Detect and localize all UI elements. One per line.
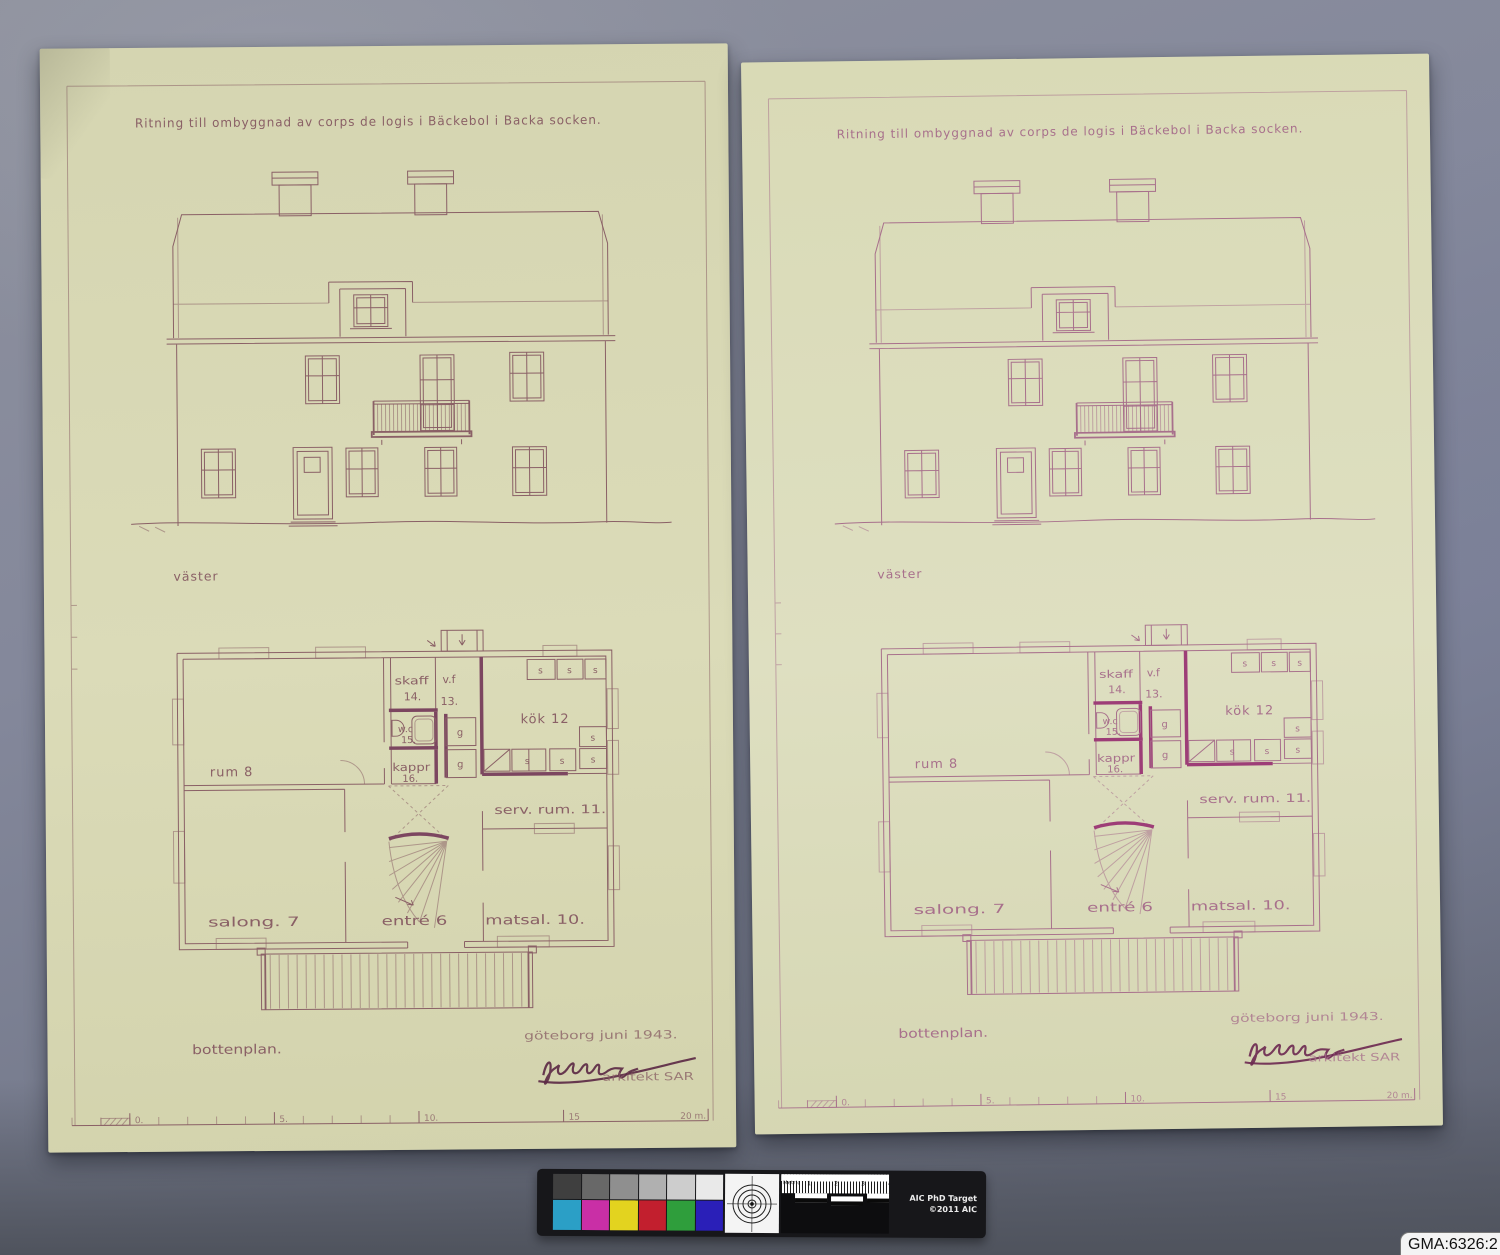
ruler-number: 2 bbox=[834, 1181, 838, 1187]
gray-patch bbox=[696, 1175, 724, 1200]
target-brand-line2: ©2011 AIC bbox=[889, 1205, 977, 1214]
drawing-sheet-original bbox=[40, 43, 737, 1152]
gray-patch bbox=[582, 1174, 610, 1199]
gray-patch bbox=[553, 1174, 581, 1199]
checker-block bbox=[795, 1193, 827, 1202]
color-patch bbox=[610, 1200, 638, 1230]
checker-block bbox=[831, 1196, 863, 1205]
gray-patch bbox=[639, 1174, 667, 1199]
color-patch bbox=[695, 1201, 723, 1231]
photo-backdrop: Metric 1 2 3 4 5 AIC PhD Target ©2011 AI… bbox=[0, 0, 1500, 1255]
target-brand: AIC PhD Target ©2011 AIC bbox=[889, 1175, 980, 1234]
checker-block bbox=[867, 1194, 889, 1203]
target-brand-line1: AIC PhD Target bbox=[889, 1194, 977, 1203]
metric-ruler-strip: Metric 1 2 3 4 5 bbox=[781, 1174, 889, 1194]
drawing-left bbox=[40, 43, 737, 1152]
ruler-number: 3 bbox=[861, 1182, 865, 1188]
color-calibration-target: Metric 1 2 3 4 5 AIC PhD Target ©2011 AI… bbox=[537, 1169, 986, 1238]
drawing-sheet-copy bbox=[741, 54, 1443, 1135]
ruler-number: 4 bbox=[888, 1182, 889, 1188]
catalog-label: GMA:6326:2 bbox=[1400, 1232, 1500, 1255]
gray-patch bbox=[610, 1174, 638, 1199]
ruler-label: Metric bbox=[783, 1180, 800, 1186]
calibration-ruler: Metric 1 2 3 4 5 bbox=[781, 1174, 889, 1234]
calibration-patches bbox=[553, 1174, 723, 1232]
ruler-number: 1 bbox=[807, 1181, 811, 1187]
color-patch bbox=[581, 1200, 609, 1230]
color-patch bbox=[638, 1200, 666, 1230]
gray-patch bbox=[667, 1175, 695, 1200]
drawing-right bbox=[741, 54, 1443, 1135]
color-patch bbox=[667, 1201, 695, 1231]
bullseye-target bbox=[725, 1174, 779, 1233]
color-patch bbox=[553, 1200, 581, 1230]
